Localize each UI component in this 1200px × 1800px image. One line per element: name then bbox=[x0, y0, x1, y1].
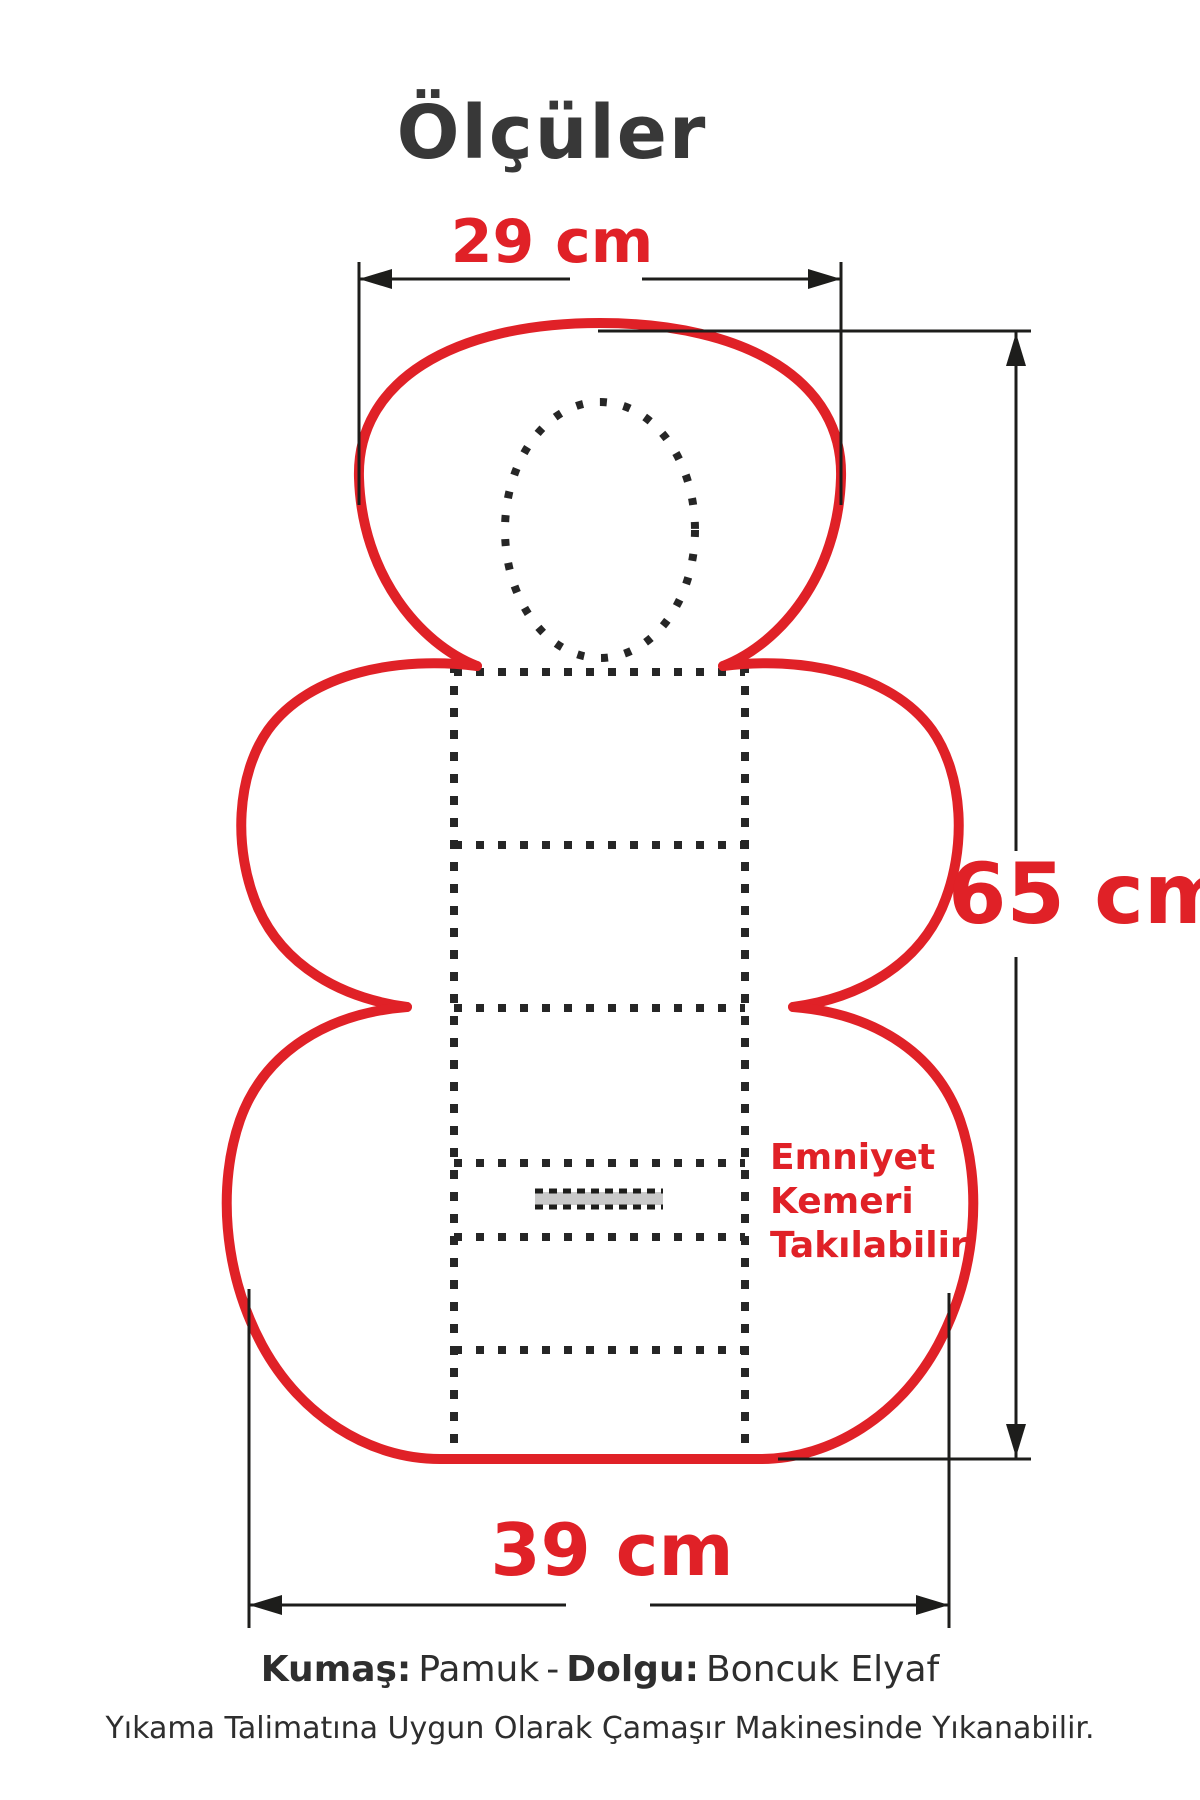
head-opening-dotted-circle bbox=[505, 402, 695, 658]
belt-annotation: Emniyet Kemeri Takılabilir bbox=[770, 1136, 968, 1268]
belt-annotation-line1: Emniyet bbox=[770, 1136, 968, 1180]
fabric-value: Pamuk bbox=[418, 1652, 539, 1688]
dimension-arrowheads bbox=[249, 269, 1026, 1615]
seat-liner-outline bbox=[227, 323, 974, 1459]
arrow-29-right bbox=[808, 269, 841, 289]
stitch-rungs bbox=[454, 672, 745, 1350]
page-title: Ölçüler bbox=[397, 96, 708, 170]
belt-slot bbox=[535, 1191, 663, 1207]
belt-annotation-line2: Kemeri bbox=[770, 1180, 968, 1224]
arrow-65-top bbox=[1006, 333, 1026, 366]
dimension-label-bottom-width: 39 cm bbox=[491, 1514, 734, 1586]
filling-value: Boncuk Elyaf bbox=[706, 1652, 939, 1688]
dimension-label-top-width: 29 cm bbox=[451, 212, 653, 272]
arrow-39-right bbox=[916, 1595, 949, 1615]
material-info-line: Kumaş:Pamuk-Dolgu:Boncuk Elyaf bbox=[261, 1652, 939, 1688]
arrow-39-left bbox=[249, 1595, 282, 1615]
filling-label: Dolgu: bbox=[566, 1652, 699, 1688]
belt-annotation-line3: Takılabilir bbox=[770, 1224, 968, 1268]
arrow-65-bottom bbox=[1006, 1424, 1026, 1457]
material-separator: - bbox=[546, 1652, 559, 1688]
care-instruction-line: Yıkama Talimatına Uygun Olarak Çamaşır M… bbox=[105, 1714, 1094, 1744]
fabric-label: Kumaş: bbox=[261, 1652, 412, 1688]
dimension-label-height: 65 cm bbox=[948, 852, 1200, 936]
measurement-diagram-page: Ölçüler 29 cm 65 cm 39 cm Emniyet Kemeri… bbox=[0, 0, 1200, 1800]
arrow-29-left bbox=[359, 269, 392, 289]
